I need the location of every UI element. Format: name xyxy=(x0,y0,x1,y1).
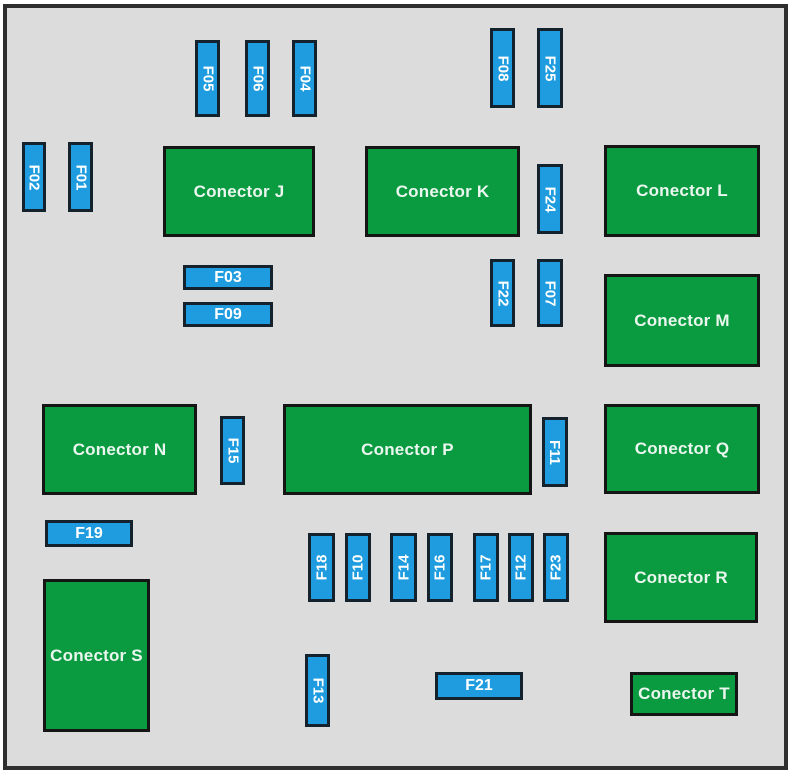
fuse-f23: F23 xyxy=(543,533,569,602)
fuse-label: F17 xyxy=(478,555,495,581)
fuse-f17: F17 xyxy=(473,533,499,602)
connector-conector-q: Conector Q xyxy=(604,404,760,494)
fuse-f14: F14 xyxy=(390,533,417,602)
fuse-f05: F05 xyxy=(195,40,220,117)
connector-label: Conector Q xyxy=(635,439,730,459)
fuse-label: F07 xyxy=(542,280,559,306)
fuse-label: F12 xyxy=(513,555,530,581)
fuse-label: F04 xyxy=(296,66,313,92)
fuse-f15: F15 xyxy=(220,416,245,485)
fuse-f25: F25 xyxy=(537,28,563,108)
connector-label: Conector P xyxy=(361,440,454,460)
fuse-f03: F03 xyxy=(183,265,273,290)
fuse-label: F06 xyxy=(249,66,266,92)
fuse-f22: F22 xyxy=(490,259,515,327)
fuse-f13: F13 xyxy=(305,654,330,727)
fuse-label: F01 xyxy=(72,164,89,190)
fuse-label: F10 xyxy=(350,555,367,581)
connector-label: Conector K xyxy=(396,182,490,202)
fuse-f07: F07 xyxy=(537,259,563,327)
fuse-label: F03 xyxy=(214,269,242,287)
fuse-label: F22 xyxy=(494,280,511,306)
connector-conector-n: Conector N xyxy=(42,404,197,495)
fuse-label: F02 xyxy=(26,164,43,190)
connector-label: Conector N xyxy=(73,440,167,460)
connector-conector-r: Conector R xyxy=(604,532,758,623)
connector-label: Conector S xyxy=(50,646,143,666)
fuse-label: F19 xyxy=(75,525,103,543)
connector-label: Conector J xyxy=(194,182,285,202)
fuse-f06: F06 xyxy=(245,40,270,117)
fuse-f10: F10 xyxy=(345,533,371,602)
fuse-f08: F08 xyxy=(490,28,515,108)
connector-conector-s: Conector S xyxy=(43,579,150,732)
connector-label: Conector L xyxy=(636,181,728,201)
fuse-f16: F16 xyxy=(427,533,453,602)
fuse-f02: F02 xyxy=(22,142,46,212)
fuse-label: F09 xyxy=(214,306,242,324)
fuse-label: F23 xyxy=(548,555,565,581)
fuse-f04: F04 xyxy=(292,40,317,117)
fuse-label: F11 xyxy=(547,439,564,464)
connector-conector-t: Conector T xyxy=(630,672,738,716)
fuse-label: F18 xyxy=(313,555,330,581)
fuse-label: F16 xyxy=(432,555,449,581)
fuse-f01: F01 xyxy=(68,142,93,212)
connector-label: Conector T xyxy=(638,684,730,704)
connector-label: Conector M xyxy=(634,311,730,331)
connector-conector-k: Conector K xyxy=(365,146,520,237)
connector-conector-j: Conector J xyxy=(163,146,315,237)
fuse-f24: F24 xyxy=(537,164,563,234)
fuse-f19: F19 xyxy=(45,520,133,547)
connector-conector-p: Conector P xyxy=(283,404,532,495)
connector-conector-m: Conector M xyxy=(604,274,760,367)
fuse-f18: F18 xyxy=(308,533,335,602)
fuse-label: F24 xyxy=(542,186,559,212)
fuse-label: F08 xyxy=(494,55,511,81)
fuse-f09: F09 xyxy=(183,302,273,327)
fuse-label: F13 xyxy=(309,678,326,704)
fuse-box-diagram-page: Conector JConector KConector LConector M… xyxy=(0,0,798,782)
fuse-label: F05 xyxy=(199,66,216,92)
fuse-label: F14 xyxy=(395,555,412,581)
fuse-f11: F11 xyxy=(542,417,568,487)
fuse-f12: F12 xyxy=(508,533,534,602)
fuse-f21: F21 xyxy=(435,672,523,700)
fuse-label: F25 xyxy=(542,55,559,81)
fuse-label: F21 xyxy=(465,677,493,695)
connector-label: Conector R xyxy=(634,568,728,588)
connector-conector-l: Conector L xyxy=(604,145,760,237)
fuse-label: F15 xyxy=(224,438,241,464)
